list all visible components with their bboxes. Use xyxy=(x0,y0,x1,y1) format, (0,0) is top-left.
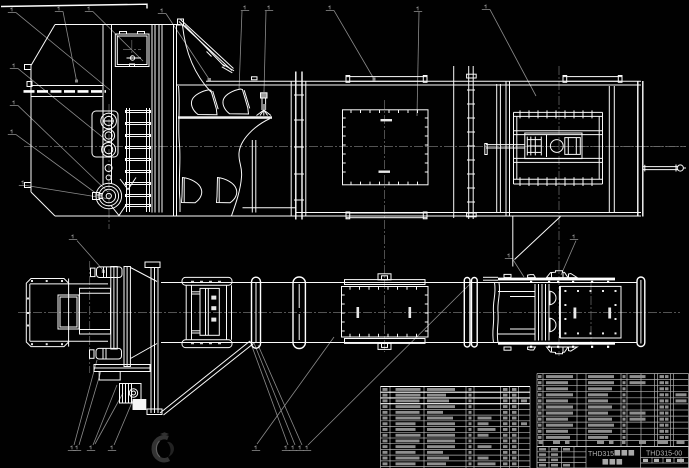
svg-text:THD315: THD315 xyxy=(588,451,614,458)
svg-text:THD315-00: THD315-00 xyxy=(646,451,682,458)
